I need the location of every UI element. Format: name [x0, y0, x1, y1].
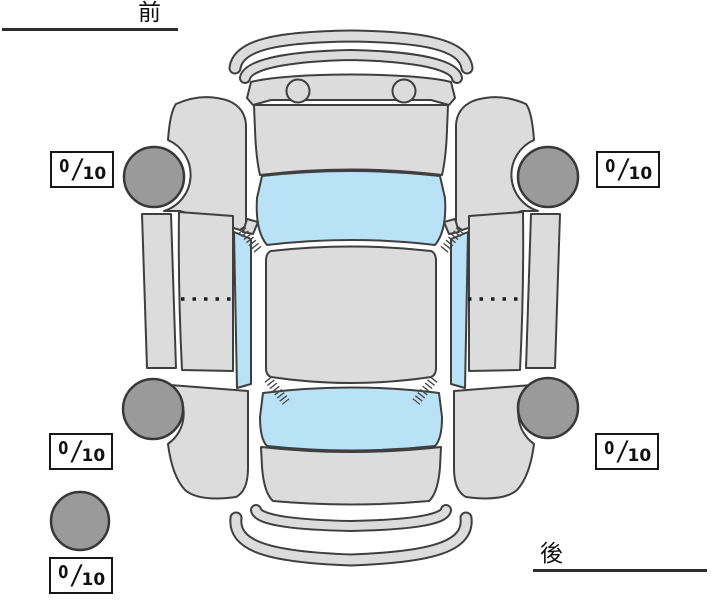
left-side-window [234, 232, 251, 388]
tread-score-box-rear-left: 0 / 10 [49, 433, 113, 470]
tread-score-max: 10 [627, 446, 651, 466]
car-top-view [0, 0, 711, 600]
tread-score-value: 0 [58, 562, 68, 583]
trunk [261, 447, 441, 505]
tread-score-box-front-right: 0 / 10 [596, 151, 660, 188]
hood-circle-left [287, 80, 310, 103]
tire-condition-diagram: 前 後 0 / 10 0 / 10 0 / 10 0 / 10 0 / 10 [0, 0, 711, 600]
rear-label: 後 [540, 542, 563, 567]
front-label: 前 [138, 1, 161, 26]
left-door-panel [179, 212, 233, 371]
right-rocker-panel [526, 214, 560, 368]
right-side-window [451, 232, 468, 388]
tread-score-max: 10 [628, 164, 652, 184]
right-door-panel [469, 212, 523, 371]
tread-score-value: 0 [605, 156, 615, 177]
tread-score-max: 10 [82, 164, 106, 184]
tread-score-value: 0 [59, 156, 69, 177]
tire-rear-right [518, 378, 578, 438]
tread-score-box-spare: 0 / 10 [49, 557, 113, 594]
tire-front-right [518, 147, 578, 207]
tire-rear-left [123, 379, 183, 439]
car-body [142, 36, 560, 560]
rear-window [260, 388, 442, 451]
tread-score-value: 0 [604, 438, 614, 459]
tread-score-box-rear-right: 0 / 10 [595, 433, 659, 470]
front-label-underline [2, 28, 178, 31]
hood [254, 105, 448, 175]
tread-score-value: 0 [58, 438, 68, 459]
windshield [257, 171, 446, 245]
tread-score-box-front-left: 0 / 10 [50, 151, 114, 188]
tread-score-max: 10 [81, 446, 105, 466]
roof [266, 247, 436, 384]
rear-label-underline [533, 569, 707, 572]
tire-front-left [124, 147, 184, 207]
tire-spare [51, 492, 109, 550]
hood-circle-right [393, 80, 416, 103]
rear-panel-band-fill [256, 510, 446, 526]
tread-score-max: 10 [81, 570, 105, 590]
left-rocker-panel [142, 214, 176, 368]
hood-top-panel [247, 75, 455, 106]
